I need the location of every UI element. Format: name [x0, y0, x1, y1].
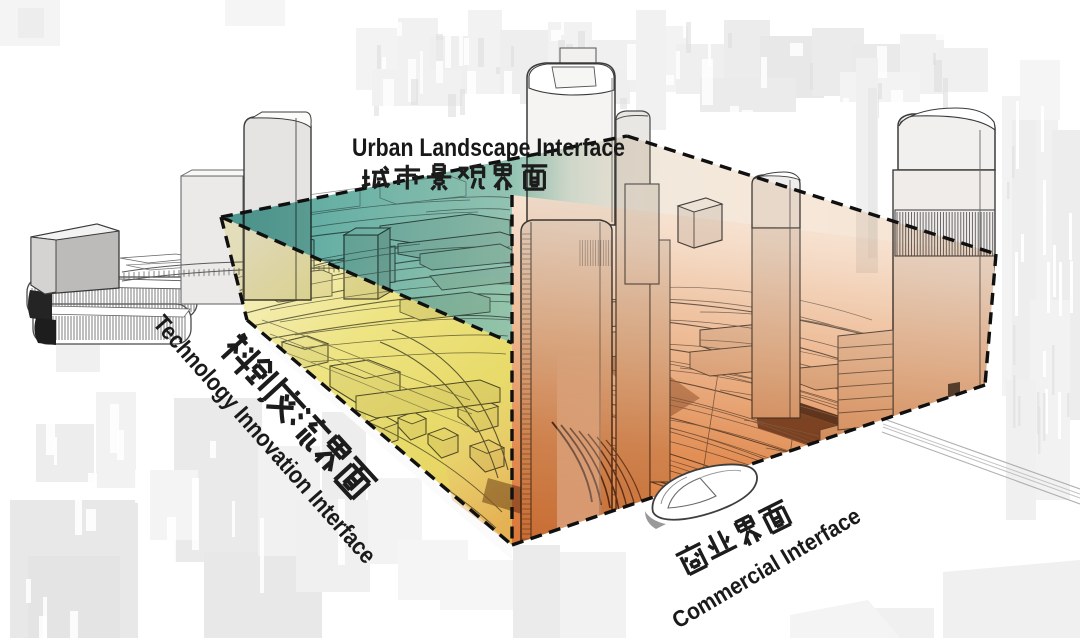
svg-text:Urban Landscape Interface: Urban Landscape Interface [352, 134, 625, 162]
